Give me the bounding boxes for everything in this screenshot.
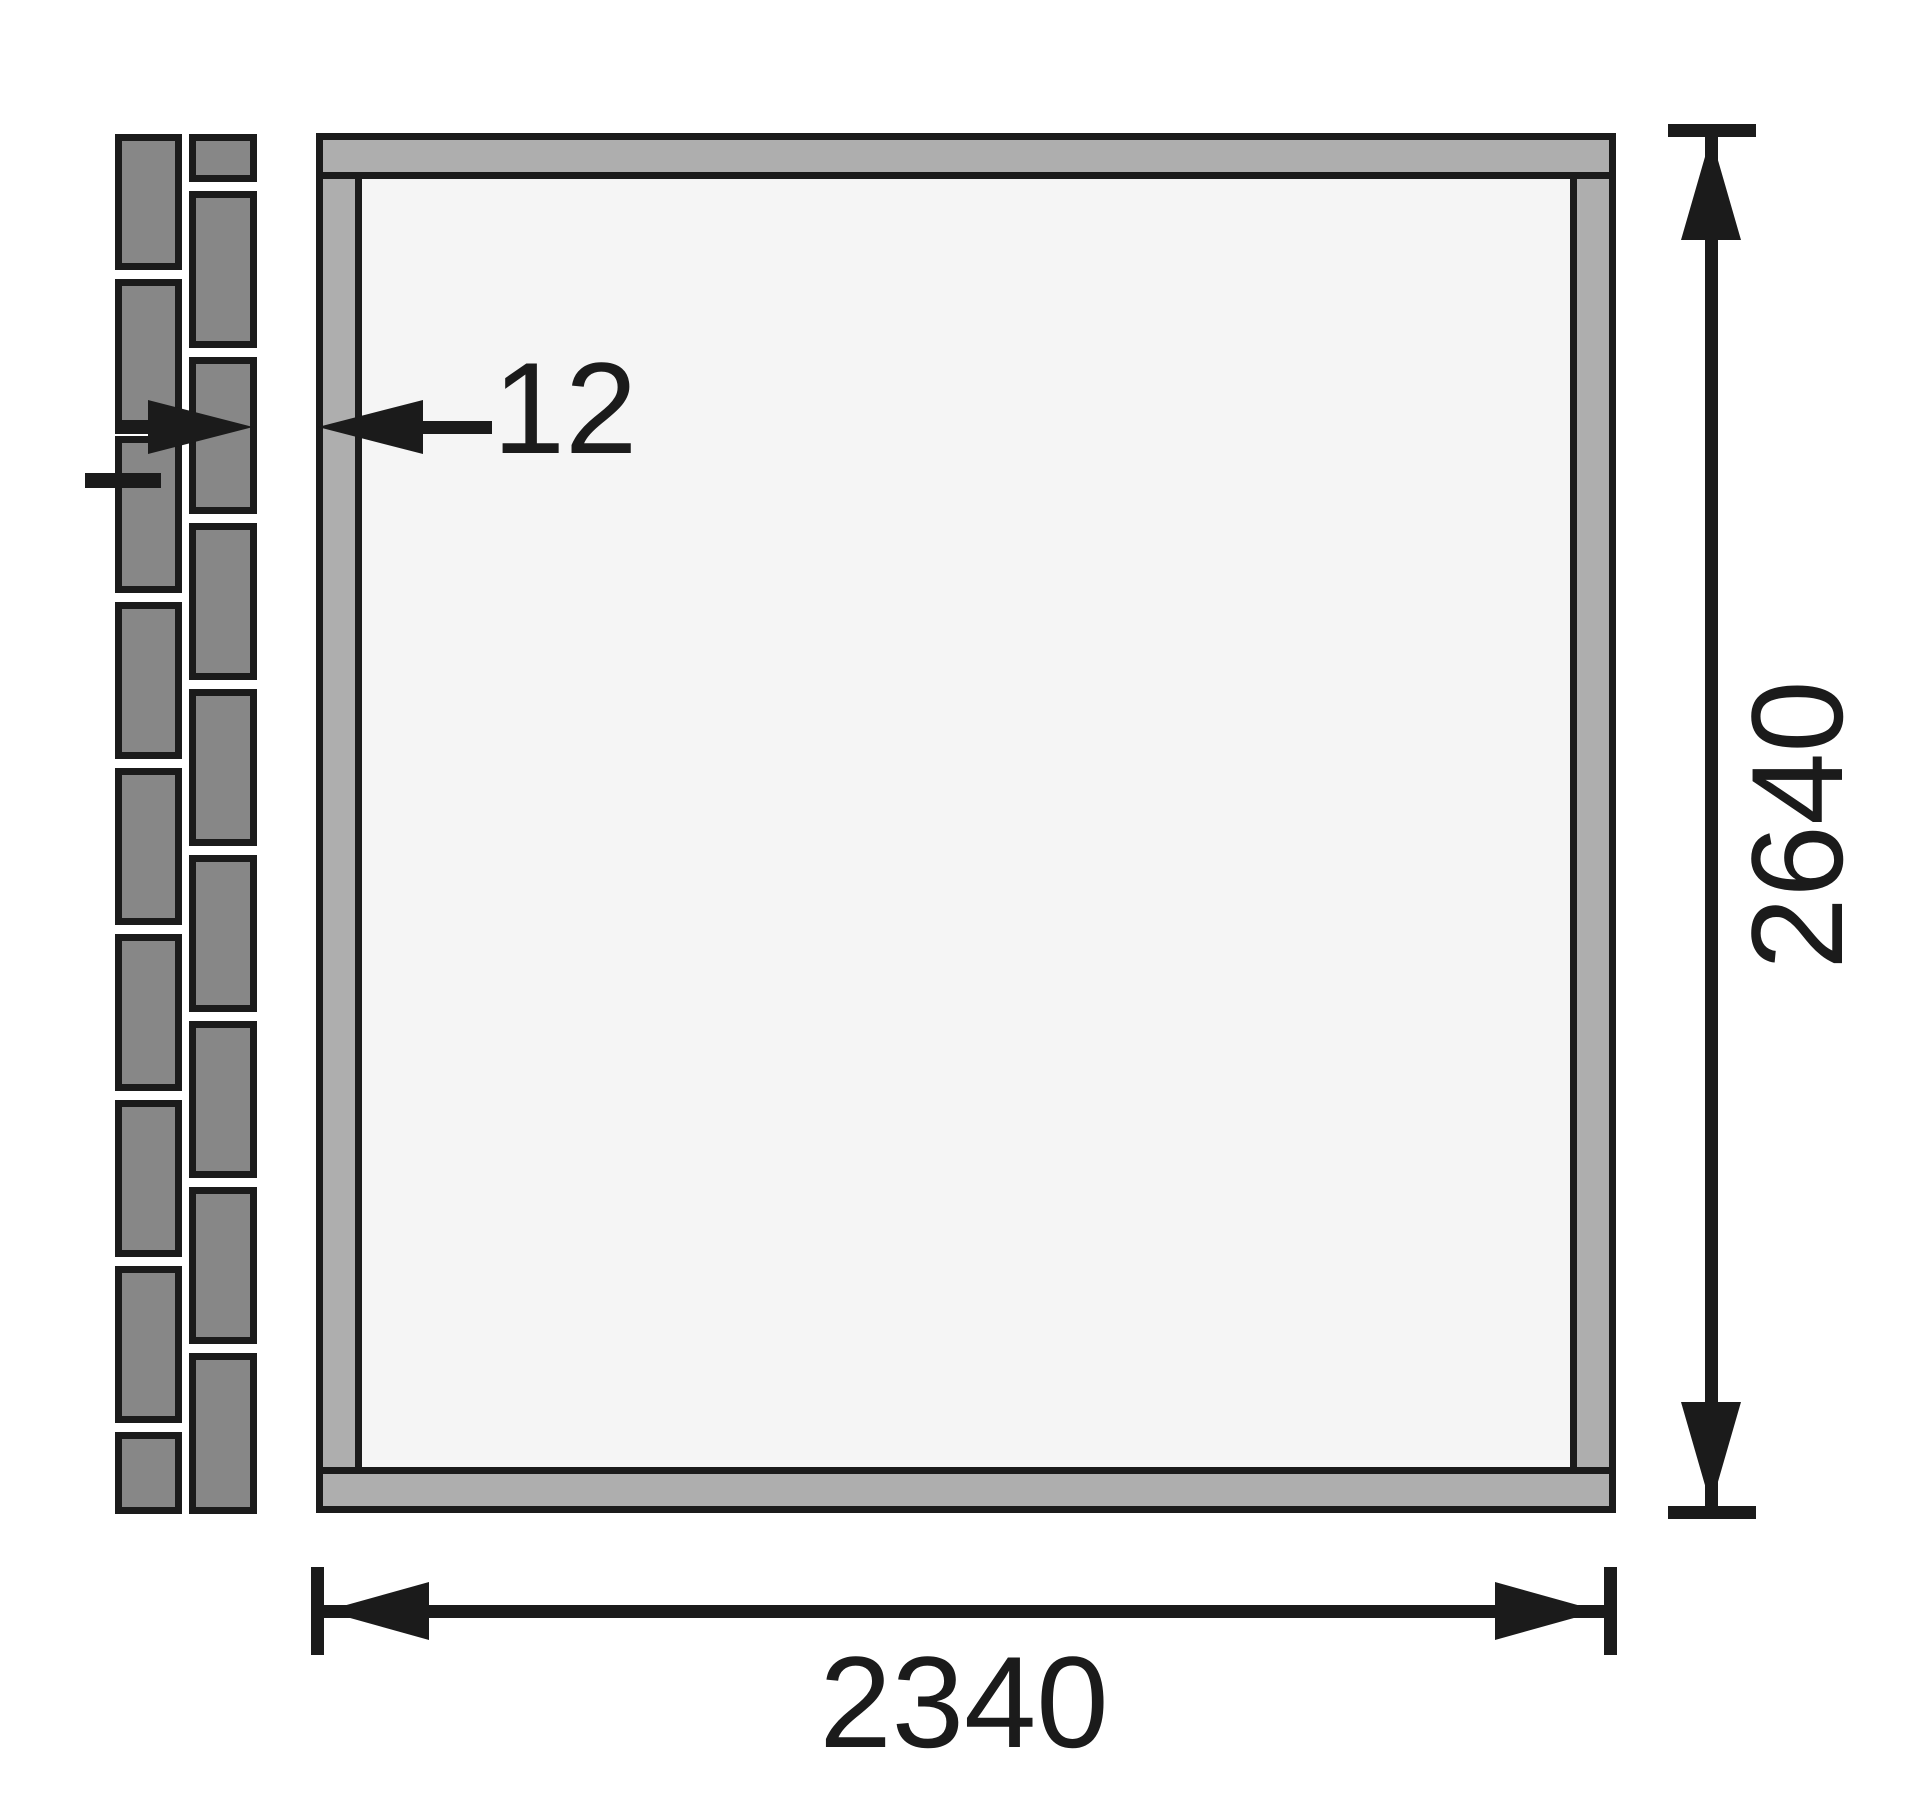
brick xyxy=(189,1187,257,1344)
wall-bottom xyxy=(316,1467,1616,1513)
brick xyxy=(115,134,182,270)
arrow-left-icon xyxy=(318,400,423,454)
width-dimension-label: 2340 xyxy=(819,1637,1108,1767)
brick xyxy=(115,934,182,1091)
height-dimension-label: 2640 xyxy=(1732,680,1862,969)
arrow-down-icon xyxy=(1681,1402,1741,1506)
section-marker-line xyxy=(85,473,161,488)
arrow-right-icon xyxy=(1495,1582,1599,1640)
brick xyxy=(115,436,182,593)
arrow-up-icon xyxy=(1681,136,1741,240)
brick xyxy=(189,134,257,182)
brick xyxy=(189,689,257,846)
brick xyxy=(115,1266,182,1423)
gap-dim-shaft-right xyxy=(420,421,492,434)
brick xyxy=(189,855,257,1012)
height-dim-line xyxy=(1705,134,1718,1512)
wall-right xyxy=(1570,172,1616,1474)
wall-top xyxy=(316,133,1616,179)
brick xyxy=(189,1353,257,1514)
brick xyxy=(115,1100,182,1257)
brick xyxy=(189,523,257,680)
brick xyxy=(189,1021,257,1178)
brick xyxy=(189,191,257,348)
brick xyxy=(115,768,182,925)
gap-dimension-label: 12 xyxy=(493,343,638,473)
dimension-diagram: 12 2640 2340 xyxy=(0,0,1918,1802)
arrow-left-icon xyxy=(325,1582,429,1640)
arrow-right-icon xyxy=(148,400,253,454)
brick xyxy=(115,1432,182,1514)
brick xyxy=(115,602,182,759)
wall-left xyxy=(316,172,362,1474)
width-dim-line xyxy=(320,1605,1608,1618)
